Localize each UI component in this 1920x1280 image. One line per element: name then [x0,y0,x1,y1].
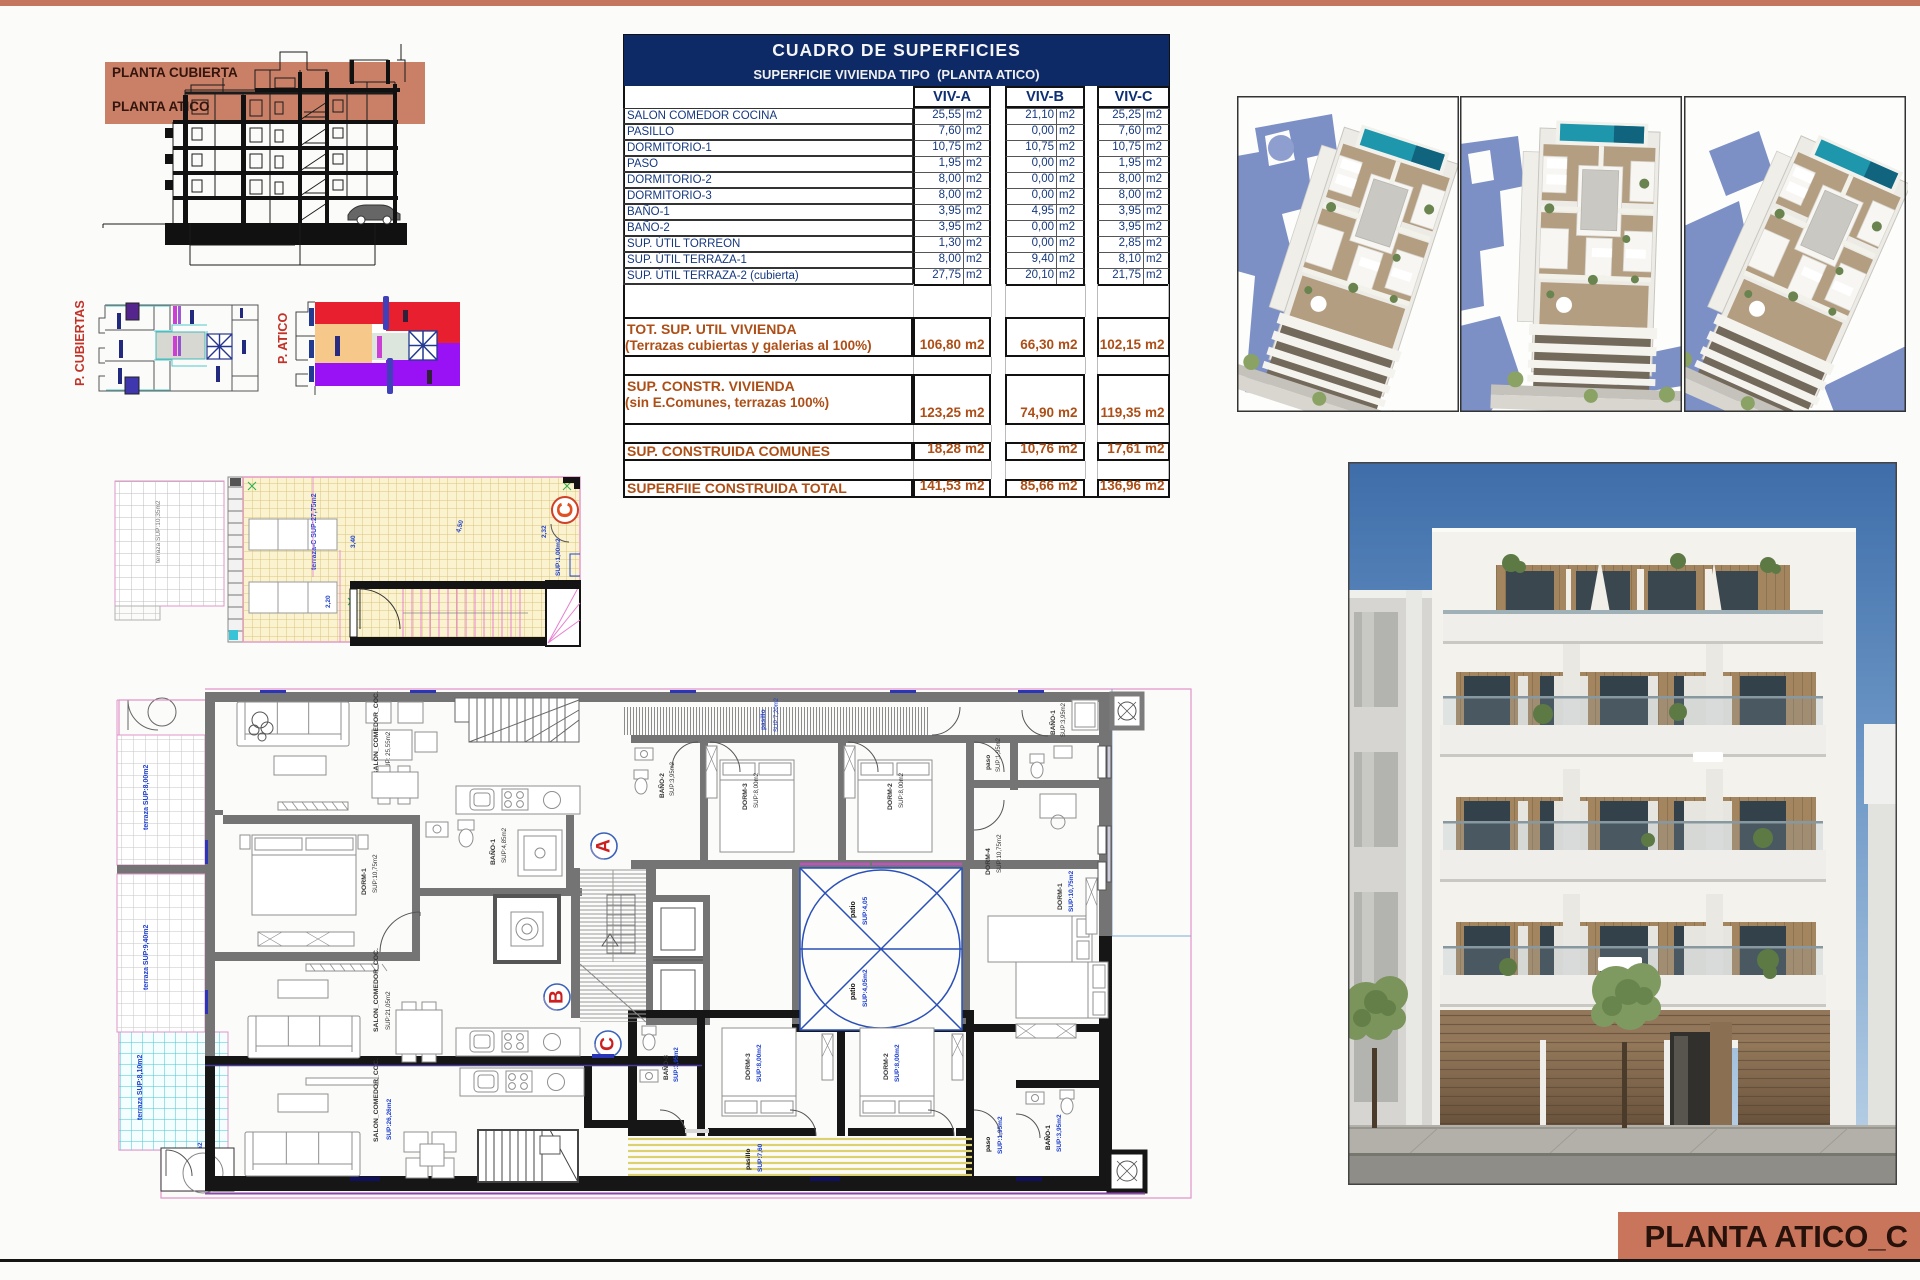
svg-text:SUP:3,95m2: SUP:3,95m2 [674,1047,680,1082]
svg-text:C: C [598,1037,619,1051]
svg-text:SUP:4,85m2: SUP:4,85m2 [501,827,508,863]
svg-text:patio: patio [850,983,857,1000]
svg-text:SUP:1,95m2: SUP:1,95m2 [996,737,1002,772]
svg-text:P. CUBIERTAS: P. CUBIERTAS [73,300,87,386]
svg-text:terraza SUP:10,35m2: terraza SUP:10,35m2 [155,500,162,563]
svg-text:SUP:8,00m2: SUP:8,00m2 [894,1044,901,1082]
svg-text:SUP:1,00m2: SUP:1,00m2 [555,538,562,576]
svg-text:BAÑO-1: BAÑO-1 [1043,1125,1052,1150]
svg-text:PLANTA ATICO: PLANTA ATICO [112,99,210,114]
svg-text:3,40: 3,40 [350,535,357,548]
svg-text:paso: paso [985,755,992,770]
svg-text:P. ATICO: P. ATICO [276,313,290,364]
svg-text:SUP:4,05: SUP:4,05 [862,896,869,925]
svg-text:terraza SUP:9,40m2: terraza SUP:9,40m2 [143,925,150,990]
svg-text:B: B [547,990,568,1004]
svg-text:terraza SUP:8,00m2: terraza SUP:8,00m2 [143,765,150,830]
svg-text:SUP:21,05m2: SUP:21,05m2 [385,991,392,1030]
svg-text:BAÑO-3: BAÑO-3 [661,1055,670,1080]
svg-text:patio: patio [850,901,857,918]
svg-text:SUP:4,05m2: SUP:4,05m2 [862,969,869,1007]
svg-text:DORM-2: DORM-2 [883,1053,890,1080]
svg-text:BAÑO-1: BAÑO-1 [488,839,497,865]
svg-text:SUP:7,60: SUP:7,60 [757,1143,764,1172]
svg-text:DORM-3: DORM-3 [745,1053,752,1080]
svg-text:2,20: 2,20 [325,595,332,608]
svg-text:A: A [594,839,615,853]
svg-text:SALON_COMEDOR_COC.: SALON_COMEDOR_COC. [373,948,380,1032]
svg-text:SALON_COMEDOR_COC.: SALON_COMEDOR_COC. [373,691,380,775]
svg-text:paso: paso [985,1137,992,1152]
svg-text:SUP:1,95m2: SUP:1,95m2 [997,1116,1004,1154]
svg-text:terraza-C SUP:27,75m2: terraza-C SUP:27,75m2 [311,493,318,570]
svg-text:terraza SUP:8,10m2: terraza SUP:8,10m2 [137,1055,144,1120]
svg-text:DORM-1: DORM-1 [1057,883,1064,910]
svg-text:SUP:10,75m2: SUP:10,75m2 [1068,870,1075,912]
svg-text:SUP:26,26m2: SUP:26,26m2 [386,1098,393,1140]
svg-text:pasillo: pasillo [760,709,767,730]
svg-text:DORM-4: DORM-4 [985,848,992,875]
svg-text:SUP:8,00m2: SUP:8,00m2 [756,1044,763,1082]
svg-text:2,32: 2,32 [541,525,548,538]
svg-text:SALON_COMEDOR_COC.: SALON_COMEDOR_COC. [373,1058,380,1142]
svg-text:BAÑO-2: BAÑO-2 [657,773,666,798]
svg-text:PLANTA CUBIERTA: PLANTA CUBIERTA [112,65,238,80]
svg-text:SUP:3,95m2: SUP:3,95m2 [1056,1114,1063,1152]
svg-text:SUP:3,95m2: SUP:3,95m2 [670,761,676,796]
svg-text:SUP:3,95m2: SUP:3,95m2 [1061,702,1067,737]
svg-text:DORM-2: DORM-2 [887,783,894,810]
svg-text:pasillo: pasillo [745,1148,752,1170]
svg-text:C: C [553,502,578,518]
svg-text:SUP:7,20m2: SUP:7,20m2 [774,697,780,732]
svg-text:DORM-3: DORM-3 [742,783,749,810]
svg-text:SUP:8,00m2: SUP:8,00m2 [753,772,760,808]
svg-text:SUP:10,75m2: SUP:10,75m2 [996,834,1003,873]
svg-text:BAÑO-1: BAÑO-1 [1048,710,1057,735]
svg-text:SUP:8,00m2: SUP:8,00m2 [898,772,905,808]
svg-text:DORM-1: DORM-1 [361,868,368,895]
svg-text:SUP:10,75m2: SUP:10,75m2 [372,854,379,893]
